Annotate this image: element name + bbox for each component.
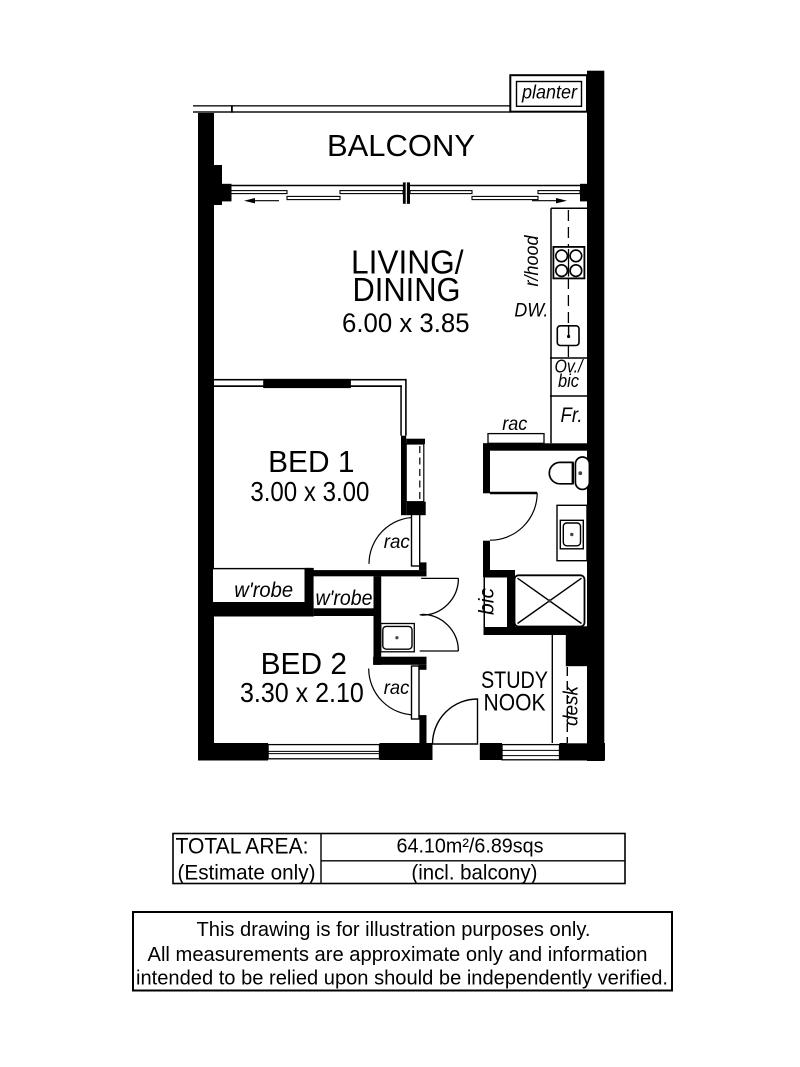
svg-text:Fr.: Fr.: [561, 404, 583, 427]
svg-text:intended to be relied upon sho: intended to be relied upon should be ind…: [136, 967, 668, 990]
svg-text:3.00 x 3.00: 3.00 x 3.00: [250, 476, 369, 507]
svg-text:desk: desk: [561, 685, 583, 726]
svg-text:planter: planter: [521, 83, 578, 104]
svg-text:w'robe: w'robe: [234, 579, 293, 602]
svg-text:rac: rac: [384, 532, 410, 553]
svg-text:TOTAL AREA:: TOTAL AREA:: [176, 834, 309, 859]
svg-text:3.30 x 2.10: 3.30 x 2.10: [240, 677, 364, 708]
svg-text:bic: bic: [476, 588, 499, 615]
svg-text:rac: rac: [502, 414, 527, 435]
svg-text:NOOK: NOOK: [484, 690, 546, 717]
svg-text:rac: rac: [384, 678, 410, 699]
svg-text:DINING: DINING: [353, 271, 461, 308]
svg-text:bic: bic: [558, 371, 579, 391]
svg-text:64.10m²/6.89sqs: 64.10m²/6.89sqs: [397, 835, 544, 858]
svg-text:w'robe: w'robe: [316, 587, 373, 610]
svg-text:BALCONY: BALCONY: [327, 128, 475, 163]
svg-text:(incl. balcony): (incl. balcony): [411, 861, 537, 885]
svg-text:6.00 x 3.85: 6.00 x 3.85: [342, 308, 470, 338]
svg-text:BED 1: BED 1: [268, 444, 354, 479]
svg-text:This drawing is for illustrati: This drawing is for illustration purpose…: [197, 918, 591, 941]
svg-text:All measurements are approxima: All measurements are approximate only an…: [148, 943, 648, 966]
svg-text:DW.: DW.: [514, 300, 548, 321]
svg-text:(Estimate only): (Estimate only): [178, 861, 316, 885]
svg-text:r/hood: r/hood: [521, 234, 543, 286]
svg-text:BED 2: BED 2: [261, 646, 347, 681]
